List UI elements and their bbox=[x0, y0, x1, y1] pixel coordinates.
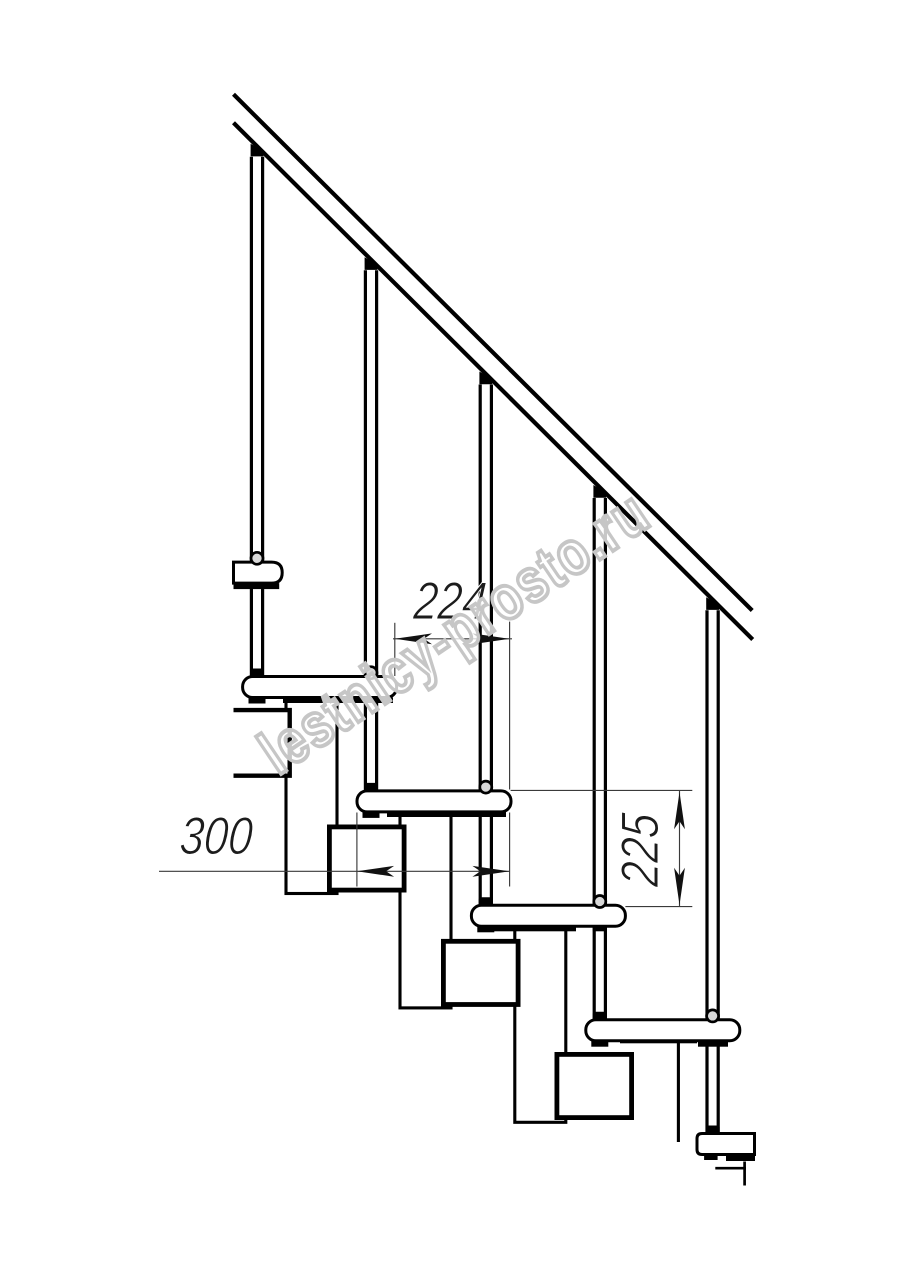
svg-text:300: 300 bbox=[178, 807, 255, 866]
svg-text:225: 225 bbox=[611, 810, 670, 889]
